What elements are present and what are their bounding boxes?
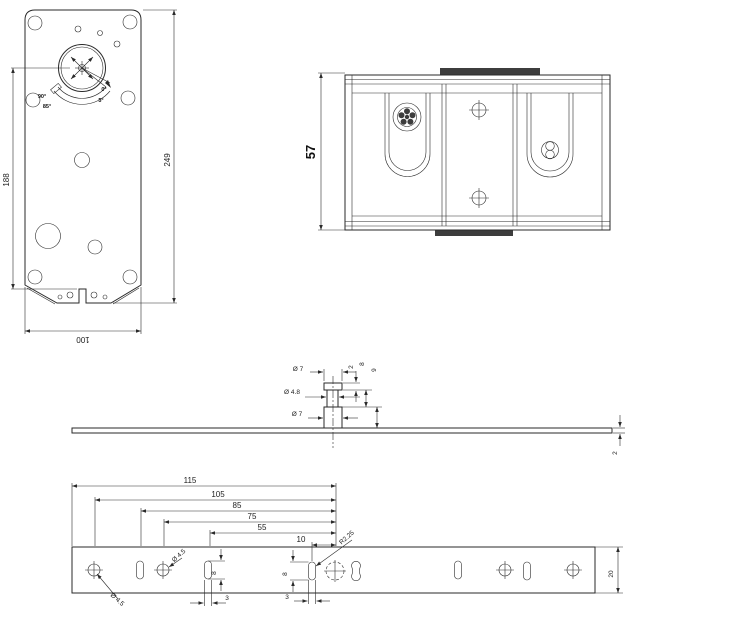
dimension-55: 55: [210, 523, 336, 533]
shaft-clamp-hole-icon: [542, 142, 559, 159]
dimension-188: 188: [2, 68, 77, 289]
slot-hole: [137, 561, 144, 579]
dim-label-105: 105: [211, 490, 225, 499]
dimension-57: 57: [303, 73, 345, 230]
dim-label-115: 115: [184, 476, 197, 485]
mounting-holes: [26, 15, 137, 299]
side-view: 57: [303, 68, 610, 236]
dim-label-dia7-cap: Ø 7: [293, 366, 304, 373]
top-clamp-strip: [440, 68, 540, 75]
dimension-slot-height-8-left: 8: [208, 549, 225, 591]
bracket-strip-outline: [72, 547, 595, 593]
angle-label: 0°: [101, 87, 106, 93]
dimension-249: 249: [113, 10, 177, 303]
leader-dia45-left: Ø 4.5: [97, 574, 126, 608]
dim-label-188: 188: [2, 173, 11, 187]
dim-label-slot-h8: 8: [211, 571, 218, 575]
scale-end-stop: [51, 83, 62, 93]
bracket-edge-bar: [72, 428, 612, 433]
dim-label-249: 249: [163, 153, 172, 167]
angle-label: 85°: [43, 104, 51, 110]
dim-label-57: 57: [303, 145, 318, 159]
left-u-slot: [385, 93, 430, 177]
dim-label-dia7-base: Ø 7: [292, 411, 303, 418]
right-u-slot: [527, 93, 573, 177]
dimension-115: 115: [72, 476, 336, 486]
hidden-shaft-circle: [324, 560, 346, 582]
dimension-dia7-cap: Ø 7: [293, 366, 356, 381]
chamfer-line-left: [27, 288, 55, 304]
round-hole: [154, 561, 172, 579]
dim-label-t2: 2: [612, 451, 619, 455]
dim-label-h9: 9: [371, 368, 378, 372]
dim-label-55: 55: [258, 523, 267, 532]
drawing-page: 90° 85° 0° 5° 188 249 100: [0, 0, 742, 638]
angle-label: 90°: [38, 94, 46, 100]
bottom-clamp-strip: [435, 230, 513, 236]
angle-label: 5°: [98, 98, 103, 104]
dim-label-h2: 2: [348, 365, 355, 369]
actuator-plate-outline: [25, 10, 141, 303]
dim-label-20: 20: [608, 570, 615, 578]
technical-drawing-canvas: 90° 85° 0° 5° 188 249 100: [0, 0, 742, 638]
bracket-view: 115 105 85 75 55 10 R2.25 Ø 4.5: [72, 476, 623, 608]
clamp-star-knob-icon: [393, 103, 421, 131]
dimension-slot-height-8-mid: 8: [282, 550, 309, 592]
dim-label-10: 10: [297, 535, 306, 544]
chamfer-line-right: [113, 288, 139, 304]
dim-label-dia45-mid: Ø 4.5: [171, 548, 188, 564]
dim-label-slot-h8-mid: 8: [282, 572, 289, 576]
slot-hole: [205, 561, 212, 579]
slot-hole: [455, 561, 462, 579]
dimension-20: 20: [595, 547, 623, 593]
dim-label-slot-w3-mid: 3: [285, 594, 289, 601]
dim-label-dia45-left: Ø 4.5: [109, 592, 126, 608]
dim-label-dia48: Ø 4.8: [284, 389, 300, 396]
angle-scale-arc: 90° 85° 0° 5°: [38, 68, 111, 110]
double-lobe-hole: [352, 561, 361, 580]
dimension-dia7-base: Ø 7: [292, 411, 358, 418]
section-view: Ø 7 Ø 4.8 Ø 7 2 8 9: [72, 362, 625, 455]
round-hole: [564, 561, 582, 579]
dimension-75: 75: [164, 512, 336, 522]
dimension-base-height-9: 9: [371, 368, 378, 428]
screw-icon: [469, 100, 489, 120]
dimension-cap-height-2: 2: [343, 365, 372, 402]
dimension-slot-width-3-mid: 3: [285, 580, 330, 604]
dim-label-75: 75: [248, 512, 257, 521]
leader-dia45-mid: Ø 4.5: [169, 548, 188, 567]
dimension-105: 105: [95, 490, 336, 500]
dimension-thickness-2: 2: [612, 415, 625, 455]
dim-label-100: 100: [76, 335, 90, 344]
dim-label-slot-w3: 3: [225, 595, 229, 602]
pointer-line: [82, 68, 106, 87]
round-hole: [496, 561, 514, 579]
dimension-10: 10: [297, 535, 336, 545]
front-view: 90° 85° 0° 5° 188 249 100: [2, 10, 177, 344]
dimension-85: 85: [141, 501, 336, 511]
dim-label-h8: 8: [359, 362, 366, 366]
screw-icon: [469, 188, 489, 208]
slot-hole: [524, 562, 531, 580]
round-hole: [85, 561, 103, 579]
dim-label-85: 85: [233, 501, 242, 510]
stud-profile: [324, 376, 342, 448]
slot-hole: [309, 562, 316, 580]
